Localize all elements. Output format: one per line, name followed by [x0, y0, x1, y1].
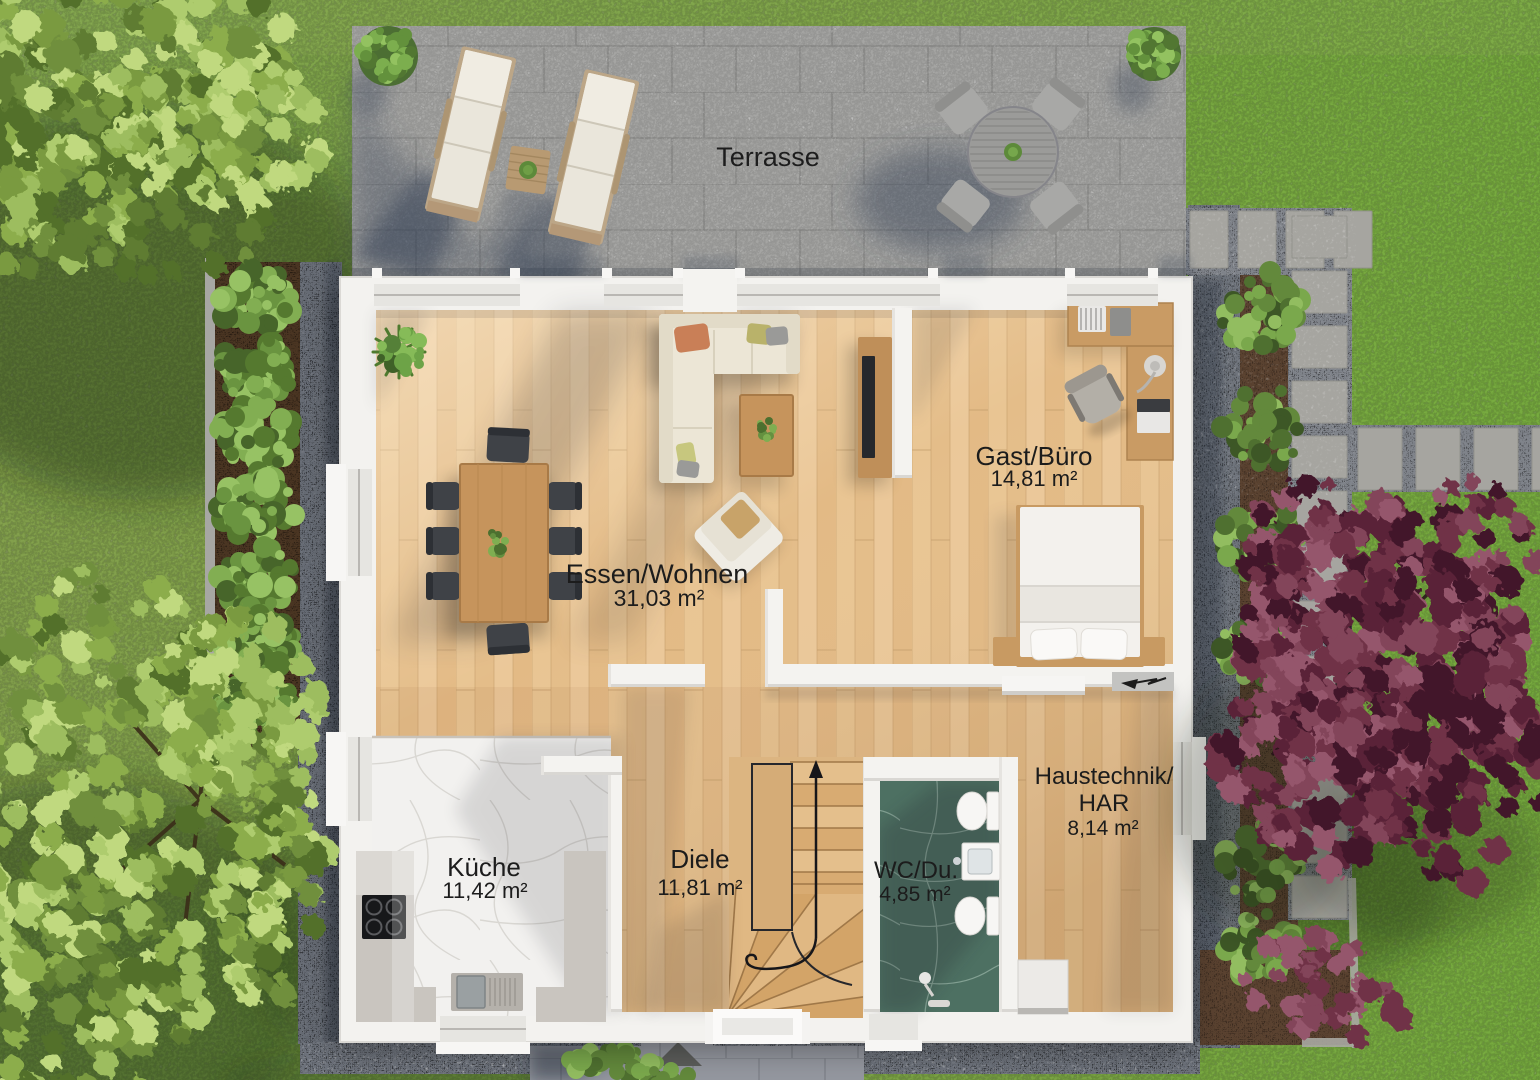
- svg-text:11,81 m²: 11,81 m²: [657, 875, 742, 900]
- svg-text:14,81 m²: 14,81 m²: [991, 466, 1078, 491]
- svg-text:31,03 m²: 31,03 m²: [614, 585, 705, 611]
- svg-text:Diele: Diele: [670, 844, 729, 874]
- svg-text:Haustechnik/: Haustechnik/: [1035, 763, 1174, 790]
- svg-text:4,85 m²: 4,85 m²: [879, 883, 950, 906]
- svg-text:Terrasse: Terrasse: [716, 142, 820, 172]
- svg-text:8,14 m²: 8,14 m²: [1067, 817, 1138, 840]
- svg-text:HAR: HAR: [1079, 790, 1130, 817]
- svg-text:11,42 m²: 11,42 m²: [442, 878, 527, 903]
- svg-text:WC/Du.: WC/Du.: [874, 857, 958, 884]
